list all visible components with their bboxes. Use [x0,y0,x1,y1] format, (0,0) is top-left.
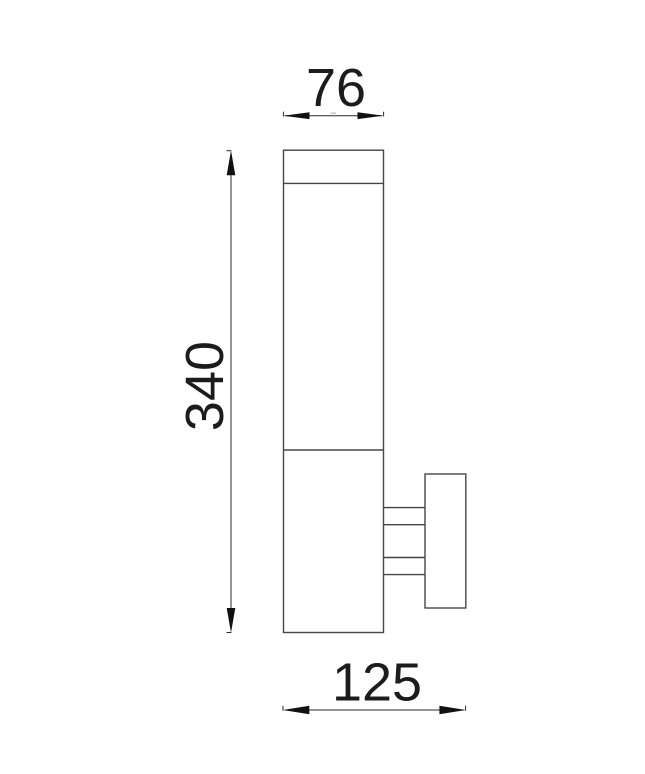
svg-text:125: 125 [332,653,422,713]
svg-text:76: 76 [306,58,366,118]
svg-text:340: 340 [175,341,235,431]
